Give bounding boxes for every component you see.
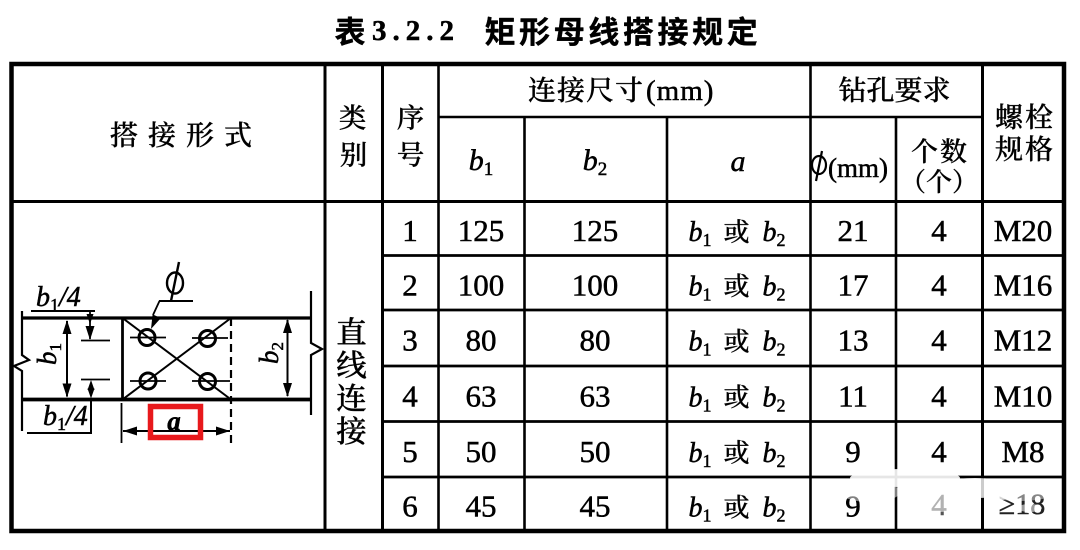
svg-text:/4: /4 <box>57 282 81 313</box>
svg-text:b: b <box>43 401 57 432</box>
svg-text:4: 4 <box>931 267 947 302</box>
svg-text:M12: M12 <box>994 323 1053 358</box>
svg-text:125: 125 <box>572 213 619 248</box>
svg-text:45: 45 <box>580 489 611 524</box>
svg-text:3: 3 <box>402 323 418 358</box>
svg-text:100: 100 <box>572 267 619 302</box>
svg-text:4: 4 <box>931 434 947 469</box>
svg-text:100: 100 <box>458 267 505 302</box>
svg-text:b: b <box>254 351 284 365</box>
svg-text:1: 1 <box>703 284 712 304</box>
svg-text:b: b <box>689 217 703 248</box>
svg-text:45: 45 <box>466 489 497 524</box>
svg-text:2: 2 <box>777 451 786 471</box>
svg-text:2: 2 <box>268 342 287 351</box>
svg-text:(mm): (mm) <box>828 153 888 183</box>
svg-text:1: 1 <box>46 343 65 352</box>
svg-text:2: 2 <box>777 284 786 304</box>
svg-text:80: 80 <box>580 323 611 358</box>
svg-text:80: 80 <box>466 323 497 358</box>
svg-text:11: 11 <box>838 378 868 413</box>
svg-text:1: 1 <box>703 230 712 250</box>
svg-text:b: b <box>469 144 484 177</box>
svg-text:b: b <box>763 217 777 248</box>
svg-text:M20: M20 <box>994 213 1053 248</box>
svg-text:63: 63 <box>580 378 611 413</box>
svg-text:M10: M10 <box>994 378 1053 413</box>
svg-text:21: 21 <box>838 213 869 248</box>
svg-text:b: b <box>763 327 777 358</box>
svg-text:2: 2 <box>598 159 608 180</box>
svg-text:b: b <box>763 438 777 469</box>
svg-text:b: b <box>689 271 703 302</box>
svg-text:b: b <box>763 271 777 302</box>
svg-text:1: 1 <box>703 340 712 360</box>
svg-text:2: 2 <box>777 230 786 250</box>
svg-text:b: b <box>36 282 50 313</box>
svg-text:17: 17 <box>838 267 869 302</box>
svg-text:125: 125 <box>458 213 505 248</box>
svg-text:M16: M16 <box>994 267 1053 302</box>
svg-text:50: 50 <box>466 434 497 469</box>
svg-text:2: 2 <box>777 506 786 526</box>
svg-text:3.2.2: 3.2.2 <box>372 15 460 47</box>
svg-text:b: b <box>689 493 703 524</box>
svg-text:a: a <box>167 406 181 436</box>
svg-text:/4: /4 <box>64 401 88 432</box>
svg-text:b: b <box>689 382 703 413</box>
svg-text:4: 4 <box>931 378 947 413</box>
svg-text:4: 4 <box>931 213 947 248</box>
svg-text:b: b <box>583 144 598 177</box>
svg-text:b: b <box>763 382 777 413</box>
svg-text:5: 5 <box>402 434 418 469</box>
svg-text:1: 1 <box>57 414 66 434</box>
svg-text:2: 2 <box>777 340 786 360</box>
svg-text:9: 9 <box>845 434 861 469</box>
svg-text:13: 13 <box>838 323 869 358</box>
svg-text:(mm): (mm) <box>646 75 714 107</box>
svg-text:1: 1 <box>703 451 712 471</box>
svg-text:4: 4 <box>402 378 418 413</box>
svg-text:4: 4 <box>931 323 947 358</box>
svg-text:b: b <box>689 327 703 358</box>
svg-text:b: b <box>32 352 62 366</box>
svg-text:1: 1 <box>402 213 418 248</box>
svg-text:6: 6 <box>402 489 418 524</box>
svg-text:1: 1 <box>484 159 494 180</box>
svg-text:M8: M8 <box>1001 434 1044 469</box>
svg-text:63: 63 <box>466 378 497 413</box>
svg-text:1: 1 <box>703 506 712 526</box>
svg-text:a: a <box>731 145 746 178</box>
svg-text:2: 2 <box>777 395 786 415</box>
svg-text:1: 1 <box>703 395 712 415</box>
svg-text:b: b <box>689 438 703 469</box>
svg-text:b: b <box>763 493 777 524</box>
svg-text:2: 2 <box>402 267 418 302</box>
svg-text:50: 50 <box>580 434 611 469</box>
